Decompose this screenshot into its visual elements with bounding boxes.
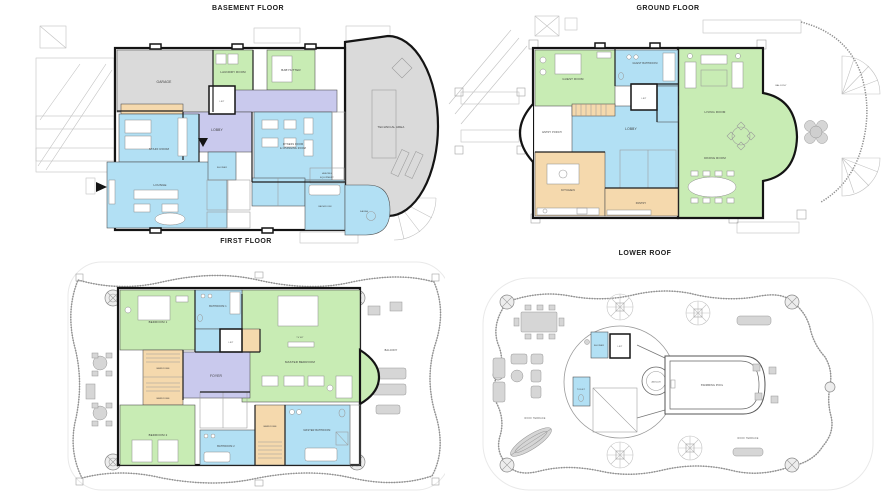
svg-text:BABYSITTER: BABYSITTER	[281, 68, 301, 72]
roof-deck	[493, 291, 835, 474]
svg-text:FOYER: FOYER	[210, 374, 223, 378]
svg-text:STAFF ROOM: STAFF ROOM	[149, 147, 170, 151]
svg-text:SHOWER: SHOWER	[217, 167, 228, 169]
svg-text:BALCONY: BALCONY	[776, 84, 787, 87]
terrace-table	[805, 121, 828, 144]
svg-text:MASTER BEDROOM: MASTER BEDROOM	[285, 360, 315, 364]
svg-text:SAUNA: SAUNA	[360, 210, 368, 213]
svg-text:LIFT: LIFT	[642, 98, 647, 100]
room-wc	[195, 329, 220, 352]
svg-text:KITCHEN: KITCHEN	[561, 188, 575, 192]
svg-text:DINING ROOM: DINING ROOM	[704, 156, 726, 160]
room-sauna	[345, 185, 390, 235]
svg-text:BATHROOM 2: BATHROOM 2	[217, 445, 235, 448]
svg-text:HEATING: HEATING	[322, 172, 332, 175]
svg-text:LIVING ROOM: LIVING ROOM	[705, 110, 726, 114]
svg-text:WARDROBE: WARDROBE	[156, 397, 170, 400]
svg-text:TV 48": TV 48"	[296, 337, 303, 339]
svg-text:BEDROOM 1: BEDROOM 1	[149, 320, 168, 324]
svg-text:& CHANGING ROOM: & CHANGING ROOM	[280, 147, 306, 150]
svg-text:BALCONY: BALCONY	[385, 349, 398, 352]
svg-text:ENTRY PORCH: ENTRY PORCH	[542, 131, 561, 134]
floor-plan-sheet: BASEMENT FLOOR GROUND FLOOR FIRST FLOOR …	[0, 0, 890, 500]
first-lift	[220, 329, 242, 352]
room-corridor	[235, 90, 337, 112]
svg-text:JACUZZI: JACUZZI	[651, 381, 661, 384]
entrance-arrow	[96, 182, 107, 192]
svg-text:FITNESS ROOM: FITNESS ROOM	[283, 143, 303, 146]
linen-closet	[242, 329, 260, 352]
porch-bay	[520, 104, 533, 162]
svg-text:SWIMMING POOL: SWIMMING POOL	[701, 384, 724, 387]
svg-text:BATHROOM 1: BATHROOM 1	[209, 305, 227, 308]
room-wc	[657, 86, 678, 122]
first-floor-plan: BEDROOM 1 BATHROOM 1 LIFT MASTER BEDROOM…	[0, 250, 445, 500]
room-shower	[208, 152, 236, 180]
closet-strip	[121, 104, 183, 114]
svg-text:ROOF TERRACE: ROOF TERRACE	[737, 437, 758, 440]
svg-text:GARAGE: GARAGE	[156, 80, 172, 84]
svg-text:GUEST ROOM: GUEST ROOM	[562, 77, 584, 81]
svg-text:TECHNICAL AREA: TECHNICAL AREA	[378, 125, 405, 129]
svg-text:ROOF TERRACE: ROOF TERRACE	[524, 417, 545, 420]
svg-text:LOBBY: LOBBY	[625, 127, 637, 131]
svg-text:PANTRY: PANTRY	[636, 202, 647, 205]
svg-text:LIFT: LIFT	[220, 101, 225, 103]
svg-text:BEDROOM 2: BEDROOM 2	[149, 433, 168, 437]
svg-text:LIFT: LIFT	[229, 342, 234, 344]
svg-text:EQUIPMENT: EQUIPMENT	[320, 177, 334, 179]
svg-text:TOILET: TOILET	[577, 389, 586, 391]
svg-text:GUEST BATHROOM: GUEST BATHROOM	[632, 62, 657, 65]
basement-floor-plan: GARAGE LAUNDRY ROOM BABYSITTER LOBBY LIF…	[0, 0, 445, 250]
svg-text:WARDROBE: WARDROBE	[263, 425, 277, 428]
svg-text:LOUNGE: LOUNGE	[153, 183, 166, 187]
ground-lift	[631, 84, 657, 110]
svg-text:MASTER BATHROOM: MASTER BATHROOM	[304, 429, 331, 432]
svg-text:WARDROBE: WARDROBE	[156, 367, 170, 370]
svg-text:SHOWER: SHOWER	[594, 345, 605, 347]
svg-text:BATHROOM: BATHROOM	[318, 205, 331, 208]
lower-roof-plan: SHOWER LIFT TOILET JACUZZI SWIMMING POOL…	[445, 250, 890, 500]
room-wardrobe-c	[255, 405, 285, 465]
closet-strip	[572, 104, 615, 116]
svg-text:LAUNDRY ROOM: LAUNDRY ROOM	[220, 70, 246, 74]
ground-floor-plan: GUEST ROOM GUEST BATHROOM LIFT LOBBY ENT…	[445, 0, 890, 250]
svg-text:LOBBY: LOBBY	[211, 128, 223, 132]
svg-text:LIFT: LIFT	[618, 346, 623, 348]
